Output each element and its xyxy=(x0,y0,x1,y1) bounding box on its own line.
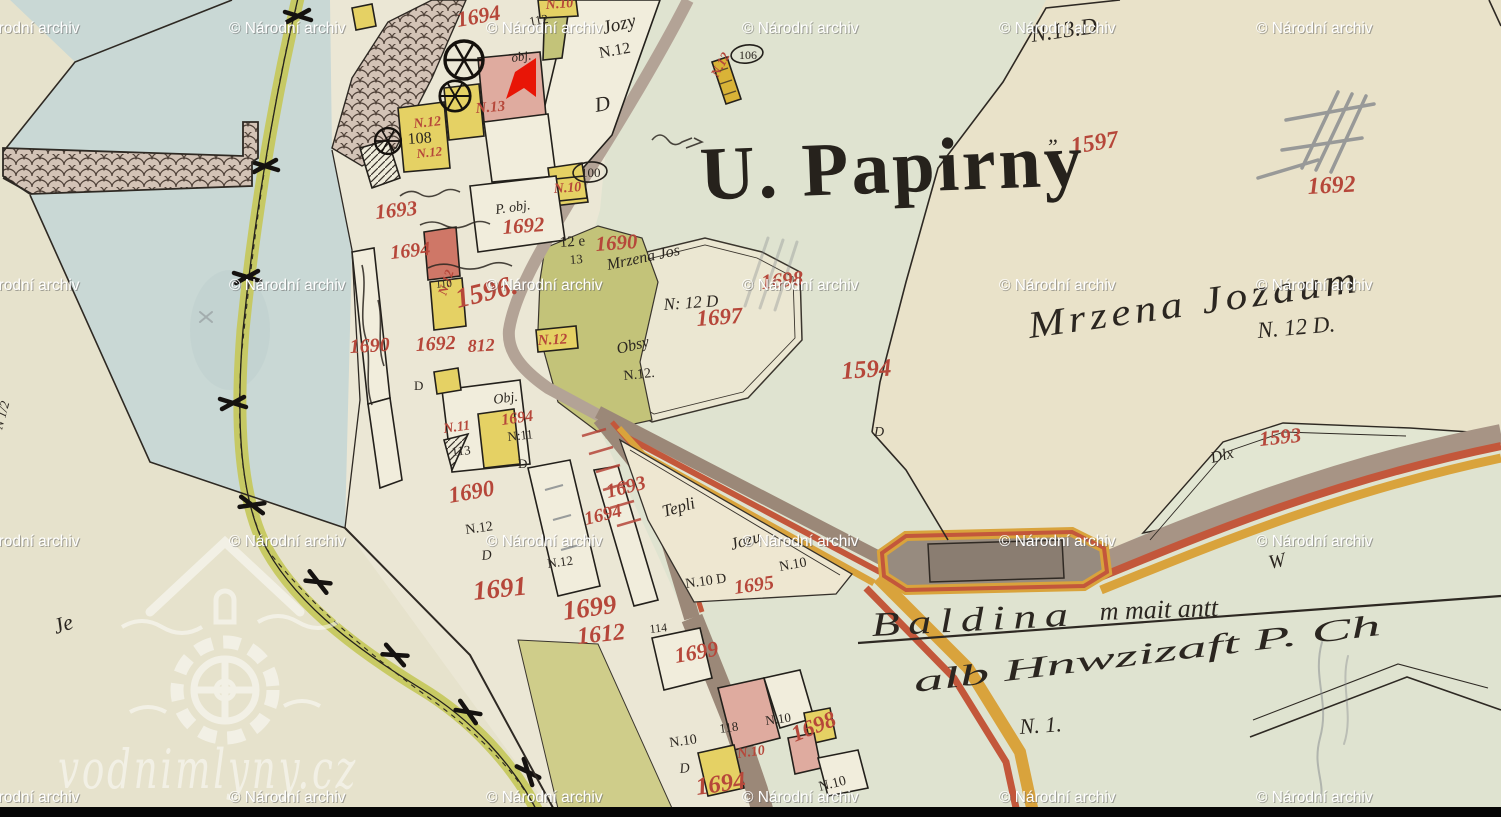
archive-watermark: © Národní archiv xyxy=(0,533,80,550)
map-label: D xyxy=(518,456,527,471)
parcel-number-red: N.10 xyxy=(552,180,582,197)
archive-watermark: © Národní archiv xyxy=(229,20,346,37)
archive-watermark: © Národní archiv xyxy=(486,789,603,806)
bottom-black-strip xyxy=(0,807,1501,817)
map-label: 113 xyxy=(451,442,471,459)
parcel-number-red: 1594 xyxy=(841,355,893,385)
map-label: N. 1. xyxy=(1018,711,1063,739)
archive-watermark: © Národní archiv xyxy=(486,533,603,550)
parcel-number-red: 1692 xyxy=(415,332,456,356)
map-label: 13 xyxy=(569,251,583,267)
archive-watermark: © Národní archiv xyxy=(742,277,859,294)
parcel-number-red: 812 xyxy=(467,335,495,356)
map-label: 106 xyxy=(739,48,757,62)
archive-watermark: © Národní archiv xyxy=(1256,789,1373,806)
map-title: U. Papirny xyxy=(698,118,1086,217)
parcel-number-red: 1693 xyxy=(374,196,418,224)
parcel-number-red: N.10 xyxy=(544,0,574,13)
map-label: N:11 xyxy=(507,426,534,444)
parcel-number-red: 1612 xyxy=(576,619,626,650)
map-canvas: 16941597169216931694169216901596.1698169… xyxy=(0,0,1501,817)
archive-watermark: © Národní archiv xyxy=(0,789,80,806)
map-label: obj. xyxy=(510,47,532,65)
archive-watermark: © Národní archiv xyxy=(229,277,346,294)
map-label: 100 xyxy=(581,165,601,180)
map-label: D xyxy=(678,761,691,777)
parcel-number-red: 1691 xyxy=(471,570,528,605)
map-label: m mait antt xyxy=(1099,593,1219,626)
map-label: 114 xyxy=(649,620,668,636)
archive-watermark: © Národní archiv xyxy=(1256,277,1373,294)
map-label: 118 xyxy=(718,718,739,736)
parcel-number-red: 1692 xyxy=(1307,172,1356,200)
archive-watermark: © Národní archiv xyxy=(999,789,1116,806)
parcel-number-red: N.13 xyxy=(474,98,506,117)
map-label: 12 e xyxy=(559,233,586,251)
archive-watermark: © Národní archiv xyxy=(1256,533,1373,550)
archive-watermark: © Národní archiv xyxy=(1256,20,1373,37)
archive-watermark: © Národní archiv xyxy=(742,533,859,550)
archive-watermark: © Národní archiv xyxy=(0,277,80,294)
map-screenshot: 16941597169216931694169216901596.1698169… xyxy=(0,0,1501,817)
archive-watermark: © Národní archiv xyxy=(742,789,859,806)
archive-watermark: © Národní archiv xyxy=(999,20,1116,37)
parcel-number-red: 1690 xyxy=(349,334,390,358)
archive-watermark: © Národní archiv xyxy=(999,533,1116,550)
archive-watermark: © Národní archiv xyxy=(0,20,80,37)
parcel-number-red: 1593 xyxy=(1258,423,1302,451)
archive-watermark: © Národní archiv xyxy=(742,20,859,37)
archive-watermark: © Národní archiv xyxy=(229,533,346,550)
map-label: 110 xyxy=(435,278,452,291)
map-label: N: 12 D xyxy=(662,291,720,314)
map-label: D xyxy=(480,548,493,564)
archive-watermark: © Národní archiv xyxy=(999,277,1116,294)
map-label: D xyxy=(414,378,423,393)
map-label: D xyxy=(873,425,884,440)
archive-watermark: © Národní archiv xyxy=(229,789,346,806)
parcel-number-red: N.12 xyxy=(536,331,568,349)
archive-watermark: © Národní archiv xyxy=(486,277,603,294)
archive-watermark: © Národní archiv xyxy=(486,20,603,37)
parcel-number-red: 1694 xyxy=(389,238,431,264)
map-label: 108 xyxy=(407,129,432,148)
